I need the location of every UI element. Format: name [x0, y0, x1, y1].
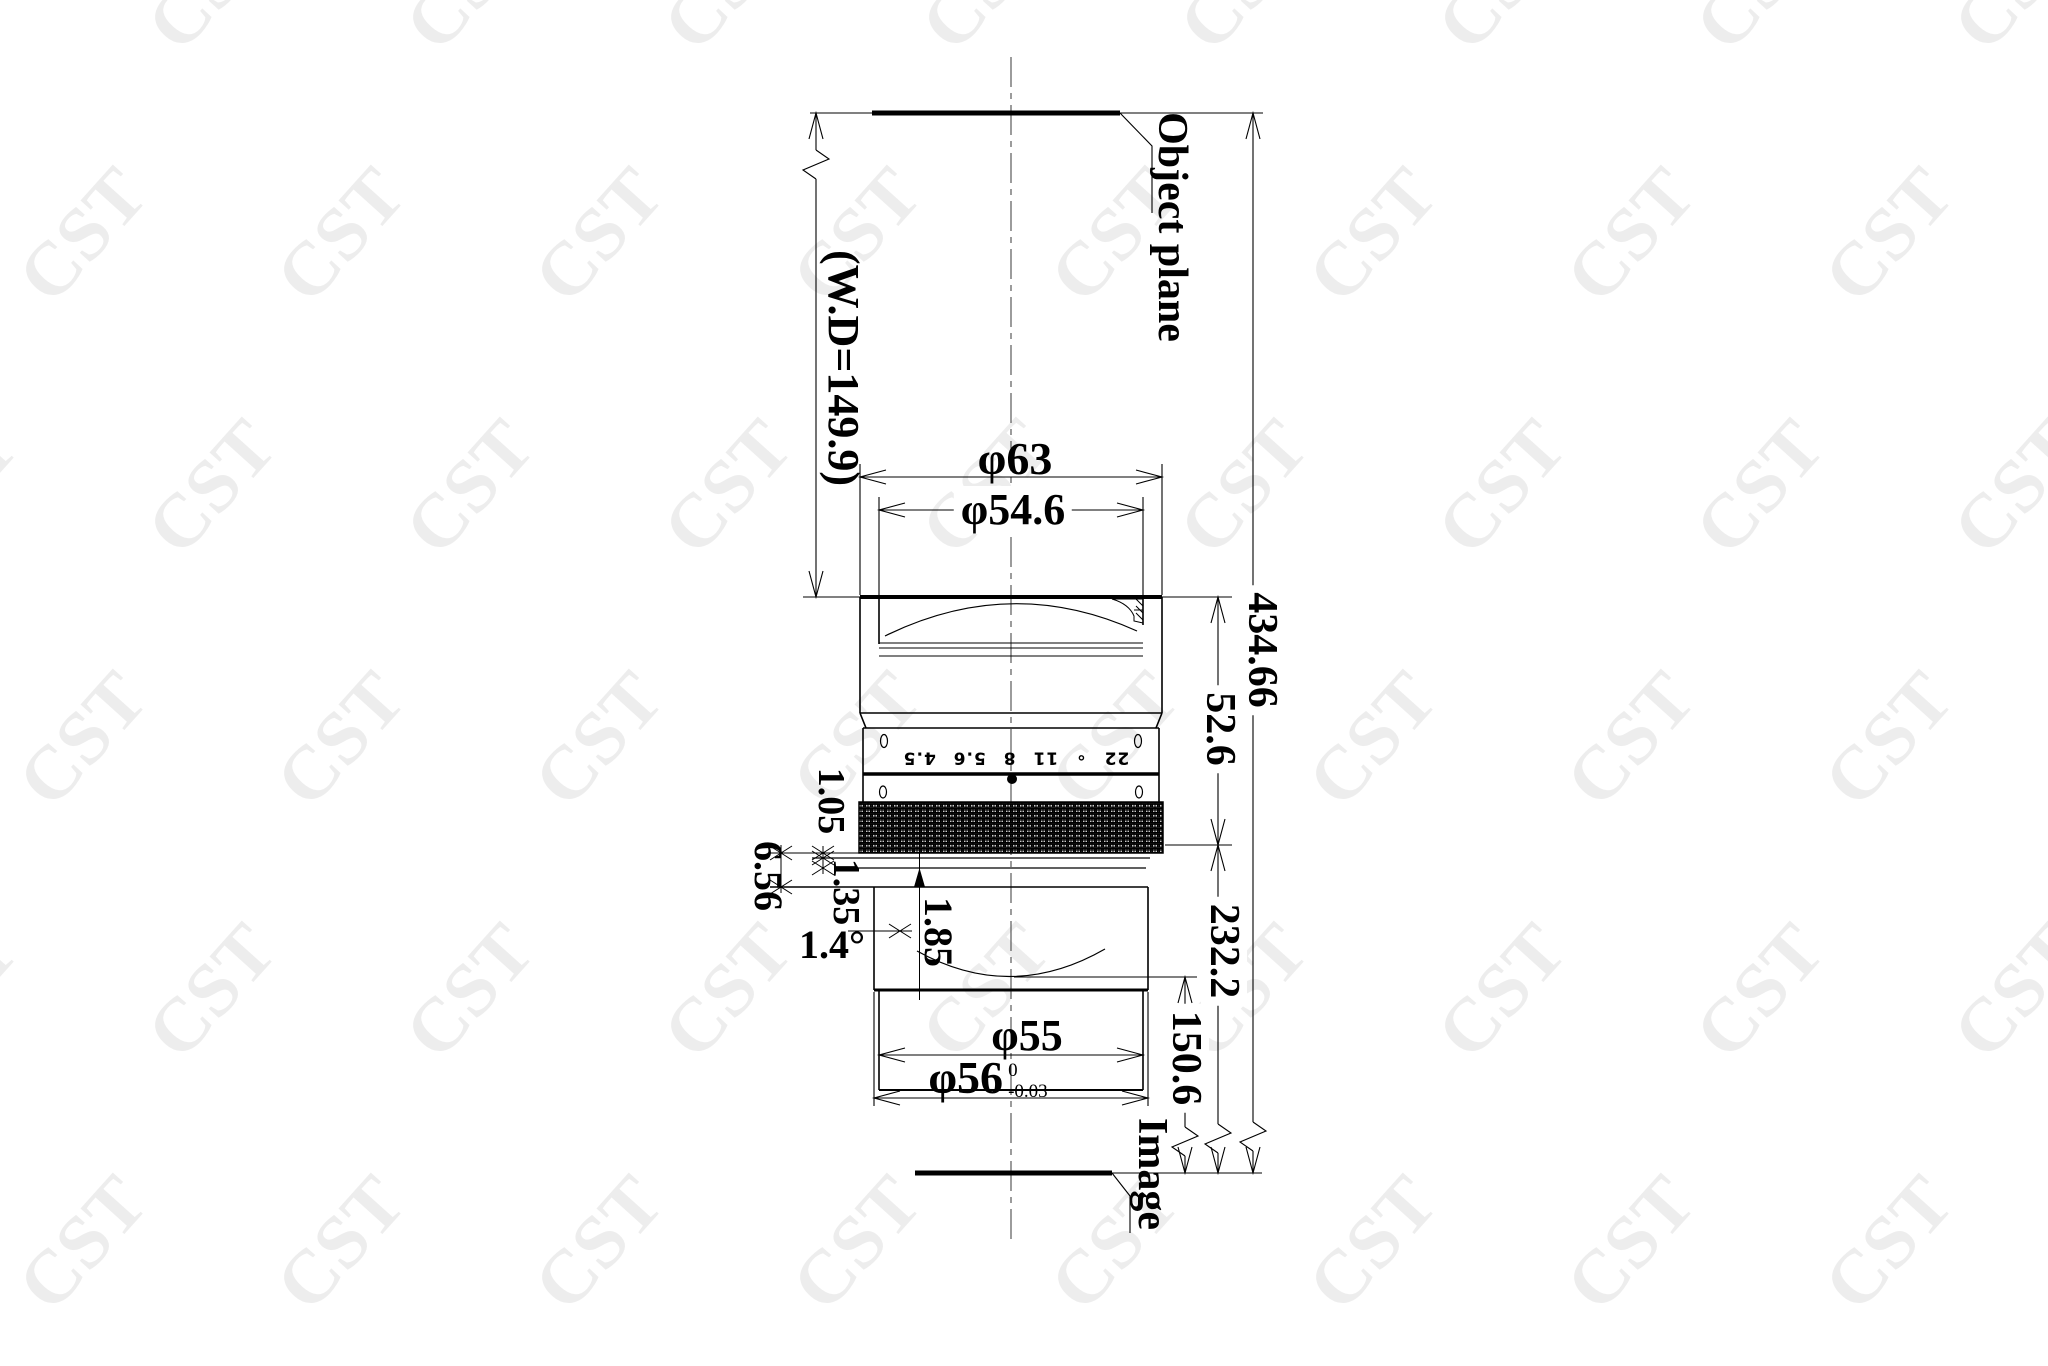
- step-6-56-label: 6.56: [748, 841, 788, 911]
- rear-outer-diameter-tolerance: 0 -0.03: [1008, 1061, 1048, 1103]
- image-plane-line: [915, 1173, 1262, 1233]
- working-distance-label: (W.D=149.9): [821, 250, 865, 486]
- aperture-index-dot: [1007, 774, 1017, 784]
- front-length-label: 52.6: [1197, 685, 1243, 773]
- rear-clearance-label: 150.6: [1163, 1004, 1209, 1113]
- aperture-scale-label: 22 ∘ 11 8 5.6 4.5: [903, 749, 1130, 766]
- object-plane-label: Object plane: [1151, 112, 1193, 342]
- tolerance-upper: 0: [1008, 1061, 1018, 1082]
- step-1-85-label: 1.85: [918, 897, 958, 967]
- lens-drawing-linework: [0, 0, 2048, 1366]
- front-bore-diameter-label: φ54.6: [954, 486, 1072, 534]
- tolerance-lower: -0.03: [1008, 1082, 1048, 1103]
- step-1-35-label: 1.35: [827, 859, 865, 926]
- lens-body-outline: [770, 597, 1163, 1090]
- knurled-ring: [859, 802, 1163, 853]
- total-track-label: 434.66: [1239, 585, 1285, 715]
- taper-angle-label: 1.4°: [799, 925, 865, 965]
- image-plane-label: Image: [1131, 1118, 1173, 1230]
- step-1-05-label: 1.05: [812, 768, 850, 835]
- object-plane-line: [810, 113, 1263, 213]
- rear-outer-diameter-label: φ56 0 -0.03: [928, 1055, 1047, 1103]
- rear-outer-diameter-value: φ56: [928, 1055, 1003, 1101]
- rear-length-label: 232.2: [1201, 897, 1247, 1006]
- front-outer-diameter-label: φ63: [978, 436, 1053, 482]
- lens-technical-drawing: CSTCSTCSTCSTCSTCSTCSTCSTCSTCSTCSTCSTCSTC…: [0, 0, 2048, 1366]
